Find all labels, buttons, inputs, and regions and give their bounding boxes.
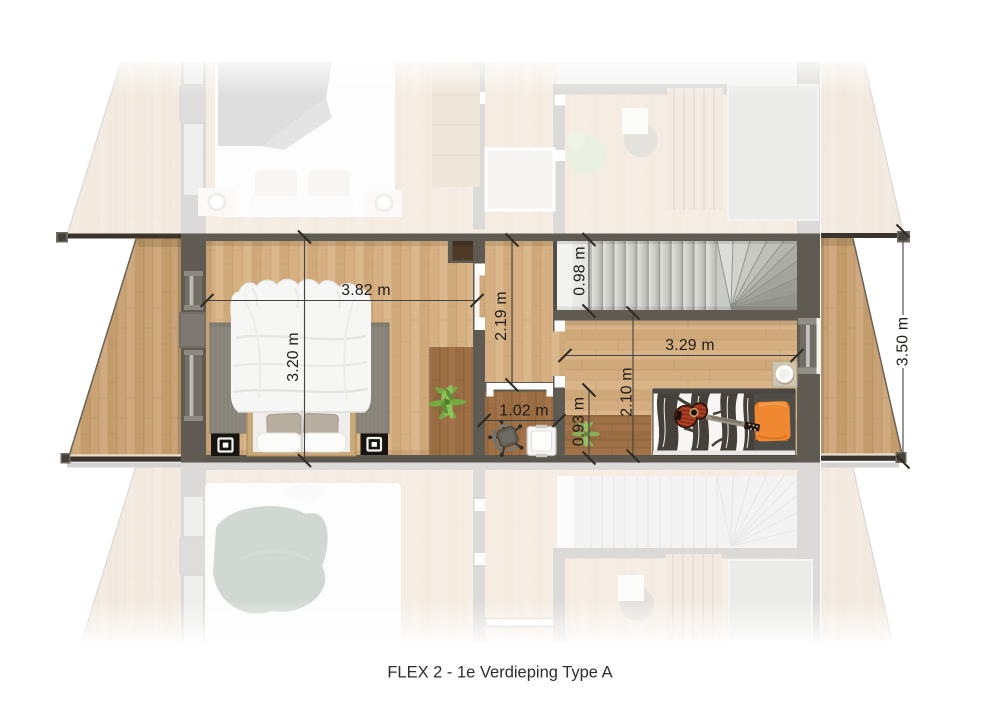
svg-text:0.98 m: 0.98 m (572, 246, 589, 296)
svg-text:2.19 m: 2.19 m (493, 291, 510, 341)
svg-text:FLEX 2 - 1e Verdieping Type A: FLEX 2 - 1e Verdieping Type A (387, 664, 612, 682)
svg-text:0.93 m: 0.93 m (571, 397, 588, 447)
svg-text:1.02 m: 1.02 m (499, 403, 549, 420)
svg-text:3.82 m: 3.82 m (341, 282, 391, 299)
svg-text:2.10 m: 2.10 m (619, 367, 636, 417)
svg-text:3.50 m: 3.50 m (895, 317, 912, 367)
svg-text:3.20 m: 3.20 m (285, 332, 302, 382)
svg-text:3.29 m: 3.29 m (665, 337, 715, 354)
